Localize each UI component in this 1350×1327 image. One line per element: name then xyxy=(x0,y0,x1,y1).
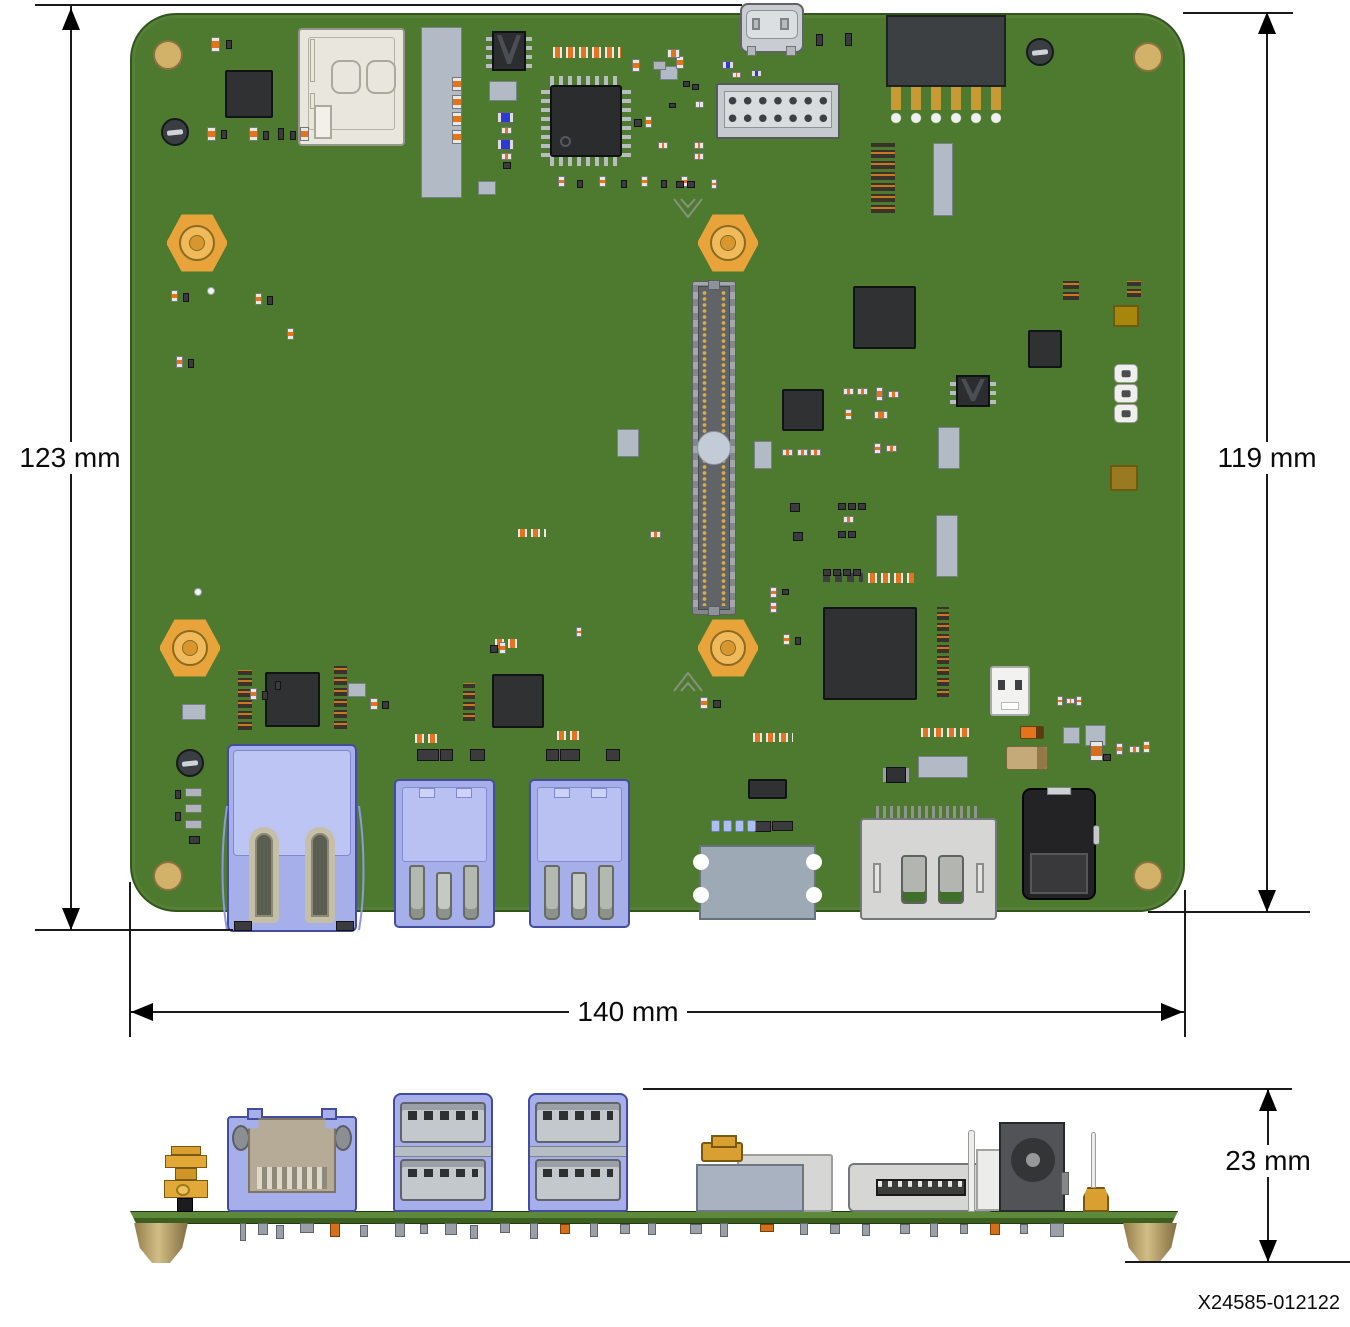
arrowhead-down xyxy=(1259,1240,1277,1262)
extension-line-side-bottom xyxy=(1125,1261,1350,1263)
arrowhead-up xyxy=(62,8,80,30)
dim-label-height-total: 123 mm xyxy=(0,442,140,474)
dim-label-width-pcb: 140 mm xyxy=(558,996,698,1028)
arrowhead-down xyxy=(62,908,80,930)
dim-label-height-total-text: 123 mm xyxy=(11,442,128,474)
extension-line-bottom-right xyxy=(1148,911,1310,913)
extension-line-side-top xyxy=(643,1088,1292,1090)
dim-label-width-pcb-text: 140 mm xyxy=(569,996,686,1028)
extension-line-top-right xyxy=(1183,12,1293,14)
dimension-annotations: 123 mm 119 mm 140 mm 23 mm X24585-012122 xyxy=(0,0,1350,1327)
dim-label-height-side: 23 mm xyxy=(1198,1145,1338,1177)
arrowhead-left xyxy=(131,1003,153,1021)
arrowhead-up xyxy=(1259,1089,1277,1111)
figure-number: X24585-012122 xyxy=(1040,1292,1340,1315)
arrowhead-up xyxy=(1258,12,1276,34)
extension-line-width-right xyxy=(1184,890,1186,1037)
dim-label-height-pcb-text: 119 mm xyxy=(1209,442,1324,474)
board-mechanical-drawing: 123 mm 119 mm 140 mm 23 mm X24585-012122 xyxy=(0,0,1350,1327)
dim-label-height-pcb: 119 mm xyxy=(1197,442,1337,474)
extension-line-top-left xyxy=(35,4,742,6)
arrowhead-right xyxy=(1161,1003,1183,1021)
dim-label-height-side-text: 23 mm xyxy=(1217,1145,1319,1177)
arrowhead-down xyxy=(1258,890,1276,912)
